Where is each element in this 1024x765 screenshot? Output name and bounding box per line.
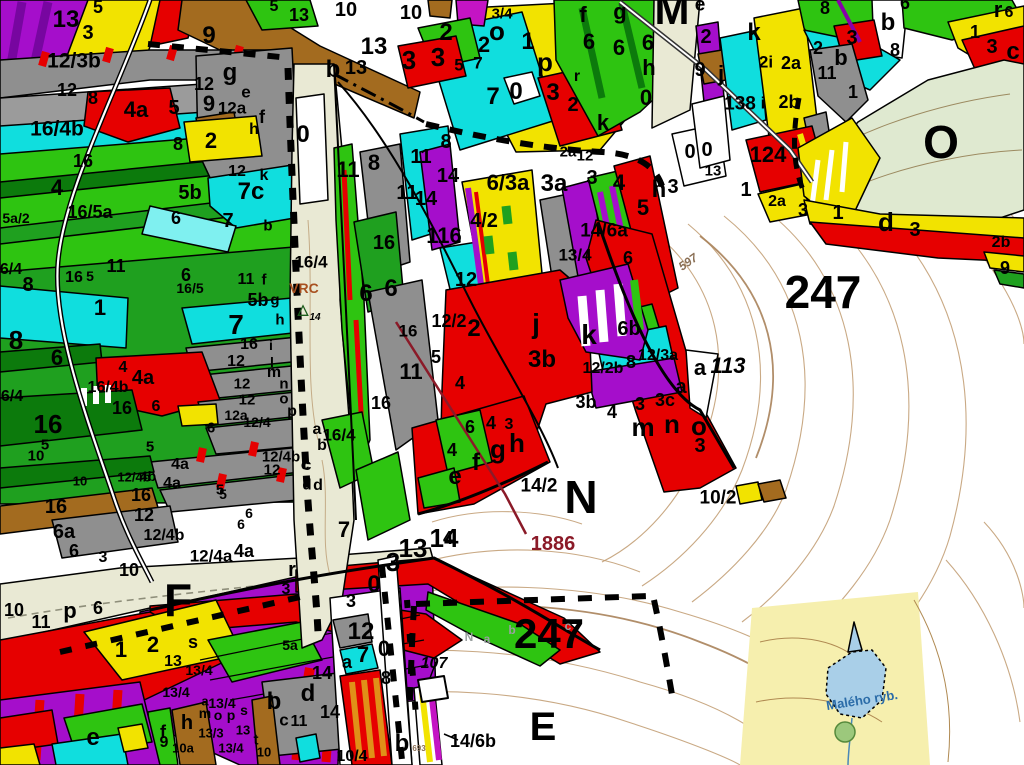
- map-label: 12: [134, 506, 154, 524]
- map-label: 8: [9, 327, 23, 353]
- map-label: 1: [970, 23, 980, 41]
- map-label: 11: [238, 272, 255, 288]
- map-label: 11: [31, 613, 50, 631]
- map-label: 13: [705, 164, 722, 179]
- map-label: 13/4: [185, 663, 212, 677]
- map-label: 2: [567, 95, 578, 115]
- map-label: 13/4: [218, 742, 243, 755]
- map-label: 7: [357, 644, 369, 666]
- map-label: 6: [51, 347, 63, 369]
- map-label: 6a: [53, 522, 75, 542]
- map-label: s: [240, 703, 248, 717]
- map-label: 6/3a: [487, 172, 530, 194]
- map-label: O: [923, 119, 959, 165]
- map-label: 9: [160, 735, 169, 751]
- map-label: 3: [431, 44, 445, 70]
- map-label: 5b: [178, 183, 201, 203]
- map-label: 10: [73, 475, 87, 488]
- map-label: 14/6b: [450, 732, 496, 750]
- map-label: a: [694, 357, 706, 379]
- map-label: 6: [245, 506, 253, 520]
- map-label: 12/3b: [47, 51, 101, 72]
- map-label: 3: [909, 220, 920, 240]
- map-label: h: [642, 57, 655, 79]
- map-label: j: [532, 310, 540, 338]
- map-label: VRC: [289, 281, 319, 295]
- map-label: m: [199, 706, 211, 720]
- map-label: N: [564, 474, 597, 520]
- map-label: k: [597, 112, 609, 134]
- map-label: 10: [335, 0, 357, 20]
- map-label: 11: [336, 159, 359, 181]
- map-label: 3: [986, 37, 997, 57]
- map-label: 5: [146, 440, 154, 455]
- map-label: 10: [400, 3, 422, 23]
- map-label: 3: [586, 168, 597, 188]
- map-label: 9: [203, 93, 215, 115]
- map-label: a: [484, 633, 491, 645]
- map-label: g: [613, 1, 626, 23]
- map-label: 16/4: [294, 254, 327, 271]
- map-label: b: [881, 11, 896, 35]
- map-label: 4: [607, 403, 617, 421]
- map-label: 3b: [575, 393, 596, 411]
- map-label: 16/4b: [30, 119, 84, 140]
- map-label: 124: [750, 144, 787, 166]
- map-label: j: [718, 63, 724, 85]
- map-label: 5b: [247, 291, 268, 309]
- map-label: 13: [53, 8, 80, 32]
- map-label: 12: [264, 463, 281, 478]
- map-label: 247: [785, 269, 862, 315]
- map-label: d: [313, 478, 323, 494]
- map-label: 5: [454, 57, 463, 74]
- map-label: d: [301, 682, 316, 706]
- map-label: 16/4b: [88, 380, 129, 396]
- map-label: a: [342, 653, 352, 671]
- map-label: i: [269, 338, 273, 352]
- map-label: b: [395, 732, 410, 756]
- map-label: 1: [521, 30, 534, 54]
- map-label: a: [675, 377, 686, 397]
- map-label: 6: [152, 399, 161, 415]
- map-label: 2: [439, 21, 452, 45]
- map-label: 2: [205, 130, 217, 152]
- map-label: 12: [455, 270, 477, 290]
- map-label: 12: [348, 620, 375, 644]
- map-label: 6: [359, 282, 372, 306]
- map-label: 6: [237, 517, 245, 531]
- map-label: g: [490, 436, 506, 462]
- grove: [835, 722, 855, 742]
- map-label: 3: [99, 550, 108, 566]
- map-label: 138: [724, 95, 756, 114]
- map-label: 247: [514, 613, 584, 655]
- map-label: n: [279, 377, 288, 392]
- map-label: c: [1006, 40, 1019, 64]
- map-label: 14: [312, 664, 332, 682]
- map-label: 0: [296, 123, 309, 147]
- field-and-pond: [740, 592, 950, 765]
- map-label: 3: [635, 395, 645, 413]
- map-label: f: [262, 273, 267, 288]
- map-label: 8: [88, 89, 98, 107]
- map-label: 14: [320, 703, 340, 721]
- map-label: 3: [546, 81, 559, 105]
- map-label: 7: [222, 211, 233, 231]
- map-label: b: [326, 58, 341, 82]
- map-label: 0: [509, 80, 522, 104]
- map-label: 4: [119, 360, 128, 376]
- map-label: p: [287, 404, 297, 420]
- map-label: 4a: [132, 368, 154, 388]
- map-label: 6: [613, 37, 625, 59]
- map-label: 12/4b: [144, 528, 185, 544]
- map-label: a: [313, 422, 322, 438]
- map-label: 13/4: [162, 685, 189, 699]
- map-label: g: [270, 293, 279, 308]
- map-label: f: [579, 4, 586, 26]
- map-label: 2a: [560, 145, 577, 160]
- map-label: 2: [700, 27, 711, 47]
- map-label: h: [275, 313, 284, 328]
- map-label: 6b: [617, 319, 640, 339]
- map-label: 12/2b: [583, 361, 624, 377]
- map-label: 16: [45, 497, 67, 517]
- map-label: △: [298, 302, 309, 316]
- map-label: 13: [164, 654, 182, 670]
- map-label: 3: [346, 592, 356, 610]
- map-label: 11: [410, 147, 431, 167]
- map-label: 693: [412, 745, 425, 753]
- map-label: 9: [202, 24, 215, 48]
- map-label: 16/5a: [67, 203, 112, 221]
- map-label: 6: [207, 421, 215, 436]
- map-label: 8: [626, 353, 636, 371]
- map-label: 13: [345, 58, 367, 78]
- map-label: 12/3a: [638, 348, 678, 364]
- map-label: 8: [368, 152, 380, 174]
- map-label: 11: [817, 64, 836, 82]
- map-label: 12: [227, 354, 245, 370]
- map-label: b: [508, 624, 515, 636]
- map-label: 6: [171, 209, 181, 227]
- map-label: 12: [57, 81, 77, 99]
- map-label: d: [302, 478, 311, 493]
- map-label: 3: [402, 47, 416, 73]
- map-label: 5a/2: [2, 211, 29, 225]
- map-label: h: [509, 430, 525, 456]
- map-label: N: [465, 631, 474, 643]
- map-label: 107: [421, 656, 448, 672]
- map-label: e: [695, 0, 706, 15]
- map-label: 14: [309, 313, 320, 323]
- map-label: 4a: [163, 476, 181, 492]
- map-label: 16: [399, 323, 418, 340]
- map-label: 6: [465, 418, 475, 436]
- map-label: 1: [115, 639, 127, 661]
- map-label: 12/2: [431, 312, 466, 330]
- map-label: 2: [147, 634, 159, 656]
- map-label: p: [537, 49, 553, 75]
- map-label: 1: [94, 297, 106, 319]
- map-label: f: [472, 451, 480, 475]
- map-label: 11: [106, 257, 125, 275]
- map-label: 16: [240, 337, 258, 353]
- map-label: 10/4: [336, 749, 367, 765]
- map-label: 10: [257, 746, 271, 759]
- map-label: 8: [22, 275, 33, 295]
- map-label: 0: [701, 140, 712, 160]
- map-label: 13: [361, 35, 388, 59]
- map-label: 12a: [218, 100, 246, 117]
- map-label: 7c: [238, 180, 265, 204]
- map-label: 13/4: [558, 247, 591, 264]
- map-label: 12: [239, 393, 256, 408]
- map-label: r: [574, 69, 580, 85]
- map-label: g: [223, 61, 238, 85]
- map-label: 12: [577, 149, 594, 164]
- map-label: 16: [73, 152, 93, 170]
- map-label: 6: [623, 249, 633, 267]
- map-label: 8: [440, 132, 451, 152]
- map-label: 12: [234, 377, 251, 392]
- map-label: 4: [455, 374, 465, 392]
- map-label: 4: [613, 172, 625, 194]
- map-label: 6/4: [0, 262, 22, 278]
- map-label: 5: [270, 0, 279, 15]
- map-label: b: [263, 219, 272, 234]
- map-label: 10: [4, 601, 24, 619]
- map-label: 6: [69, 542, 79, 560]
- map-label: k: [747, 21, 760, 45]
- map-sheet: 247247ONEFM1335912/3b12812ge16/4b4a5912a…: [0, 0, 1024, 765]
- map-label: p: [63, 600, 76, 622]
- map-label: 6: [583, 31, 595, 53]
- map-label: F: [164, 577, 192, 623]
- map-label: 16: [131, 486, 151, 504]
- map-label: 4: [486, 414, 496, 432]
- map-label: 6: [642, 32, 654, 54]
- map-label: 2i: [759, 54, 773, 71]
- map-label: 7: [486, 85, 499, 109]
- map-label: 16/4: [322, 427, 355, 444]
- map-label: 5: [168, 98, 179, 118]
- map-label: 6: [93, 599, 103, 617]
- map-label: 113: [710, 355, 745, 377]
- map-label: 9: [694, 60, 705, 80]
- map-label: 6/4: [1, 389, 23, 405]
- map-label: m: [631, 414, 654, 440]
- map-label: c: [301, 458, 309, 473]
- map-label: h: [249, 122, 259, 138]
- map-label: n: [664, 411, 680, 437]
- map-label: 2a: [781, 54, 801, 72]
- map-label: 2a: [768, 194, 786, 210]
- map-label: e: [86, 726, 99, 750]
- map-label: 3: [667, 177, 678, 197]
- map-label: 13: [289, 6, 309, 24]
- map-label: o: [214, 708, 223, 722]
- map-label: 4: [51, 177, 63, 199]
- map-label: 10a: [172, 742, 194, 755]
- map-label: 3/4: [492, 7, 513, 22]
- map-label: 5: [93, 0, 103, 16]
- map-label: 8: [381, 669, 391, 687]
- map-label: 13/3: [198, 727, 223, 740]
- map-label: c: [565, 620, 572, 632]
- map-label: 10/2: [700, 489, 737, 508]
- map-label: M: [655, 0, 690, 31]
- map-label: 4/2: [470, 211, 498, 231]
- map-label: s: [188, 633, 198, 651]
- map-label: 5a: [282, 638, 298, 652]
- map-label: 4a: [124, 99, 148, 121]
- map-label: 14: [415, 189, 437, 209]
- map-label: 5: [219, 487, 227, 501]
- map-label: f: [259, 108, 265, 126]
- map-label: 3c: [655, 391, 675, 409]
- map-label: 10: [119, 561, 139, 579]
- map-label: 16/5: [176, 281, 203, 295]
- map-label: c: [279, 712, 288, 729]
- map-label: 3: [798, 201, 808, 219]
- map-label: 7: [473, 55, 482, 72]
- map-label: 2: [813, 39, 823, 57]
- map-label: 4a: [234, 542, 254, 560]
- map-label: 1: [848, 83, 858, 101]
- map-label: 16: [34, 411, 63, 437]
- map-label: 16: [112, 399, 132, 417]
- map-label: 14: [430, 525, 459, 551]
- map-label: b: [317, 438, 327, 454]
- map-label: 0: [367, 573, 380, 597]
- map-label: 14/2: [521, 477, 558, 496]
- map-label: r: [288, 560, 296, 580]
- map-label: 2b: [992, 235, 1011, 251]
- map-label: 1886: [531, 534, 576, 554]
- map-label: d: [878, 209, 894, 235]
- map-label: p: [227, 708, 236, 722]
- map-label: 14/6a: [580, 222, 628, 241]
- map-label: 1: [740, 180, 751, 200]
- map-label: h: [652, 178, 667, 202]
- map-label: 8: [173, 135, 183, 153]
- map-label: 3: [282, 582, 291, 598]
- map-label: 14: [437, 166, 459, 186]
- map-label: 4a: [171, 457, 189, 473]
- map-label: 9: [1000, 259, 1010, 277]
- map-label: 5: [637, 197, 649, 219]
- map-label: 6: [1005, 5, 1014, 21]
- map-label: 7: [228, 311, 244, 339]
- map-label: 16: [373, 233, 395, 253]
- map-label: 0: [378, 638, 390, 660]
- map-label: 8: [820, 0, 830, 17]
- map-label: 16: [65, 270, 83, 286]
- map-label: 13: [399, 535, 428, 561]
- map-label: 3: [82, 23, 93, 43]
- map-label: 7: [338, 519, 350, 541]
- map-label: i: [761, 95, 766, 112]
- map-label: 16: [371, 394, 391, 412]
- map-label: 13: [236, 724, 250, 737]
- map-label: 3: [694, 436, 705, 456]
- map-label: 6: [900, 0, 910, 12]
- map-label: 12/4b: [117, 471, 150, 484]
- map-label: 0: [684, 142, 695, 162]
- map-label: 2: [467, 317, 480, 341]
- map-label: 116: [426, 225, 462, 247]
- map-label: 0: [640, 87, 652, 109]
- map-label: 12/4a: [190, 548, 233, 565]
- map-label: 3b: [528, 348, 556, 372]
- map-label: r: [994, 0, 1003, 21]
- map-label: 3a: [541, 172, 568, 196]
- map-label: 10: [28, 449, 45, 464]
- map-label: 11: [399, 361, 422, 383]
- map-label: 6: [384, 277, 397, 301]
- map-label: E: [530, 707, 557, 747]
- map-label: 11: [291, 714, 308, 730]
- map-label: 5: [86, 269, 94, 283]
- map-label: 2b: [778, 93, 799, 111]
- map-label: h: [181, 713, 193, 733]
- map-label: e: [448, 465, 461, 489]
- map-label: 12/4: [243, 415, 270, 429]
- map-label: 5: [431, 348, 441, 366]
- map-label: k: [581, 321, 597, 349]
- map-label: 4: [447, 441, 457, 459]
- map-label: 3: [846, 28, 857, 48]
- map-label: 8: [890, 41, 900, 59]
- map-label: 1: [832, 203, 843, 223]
